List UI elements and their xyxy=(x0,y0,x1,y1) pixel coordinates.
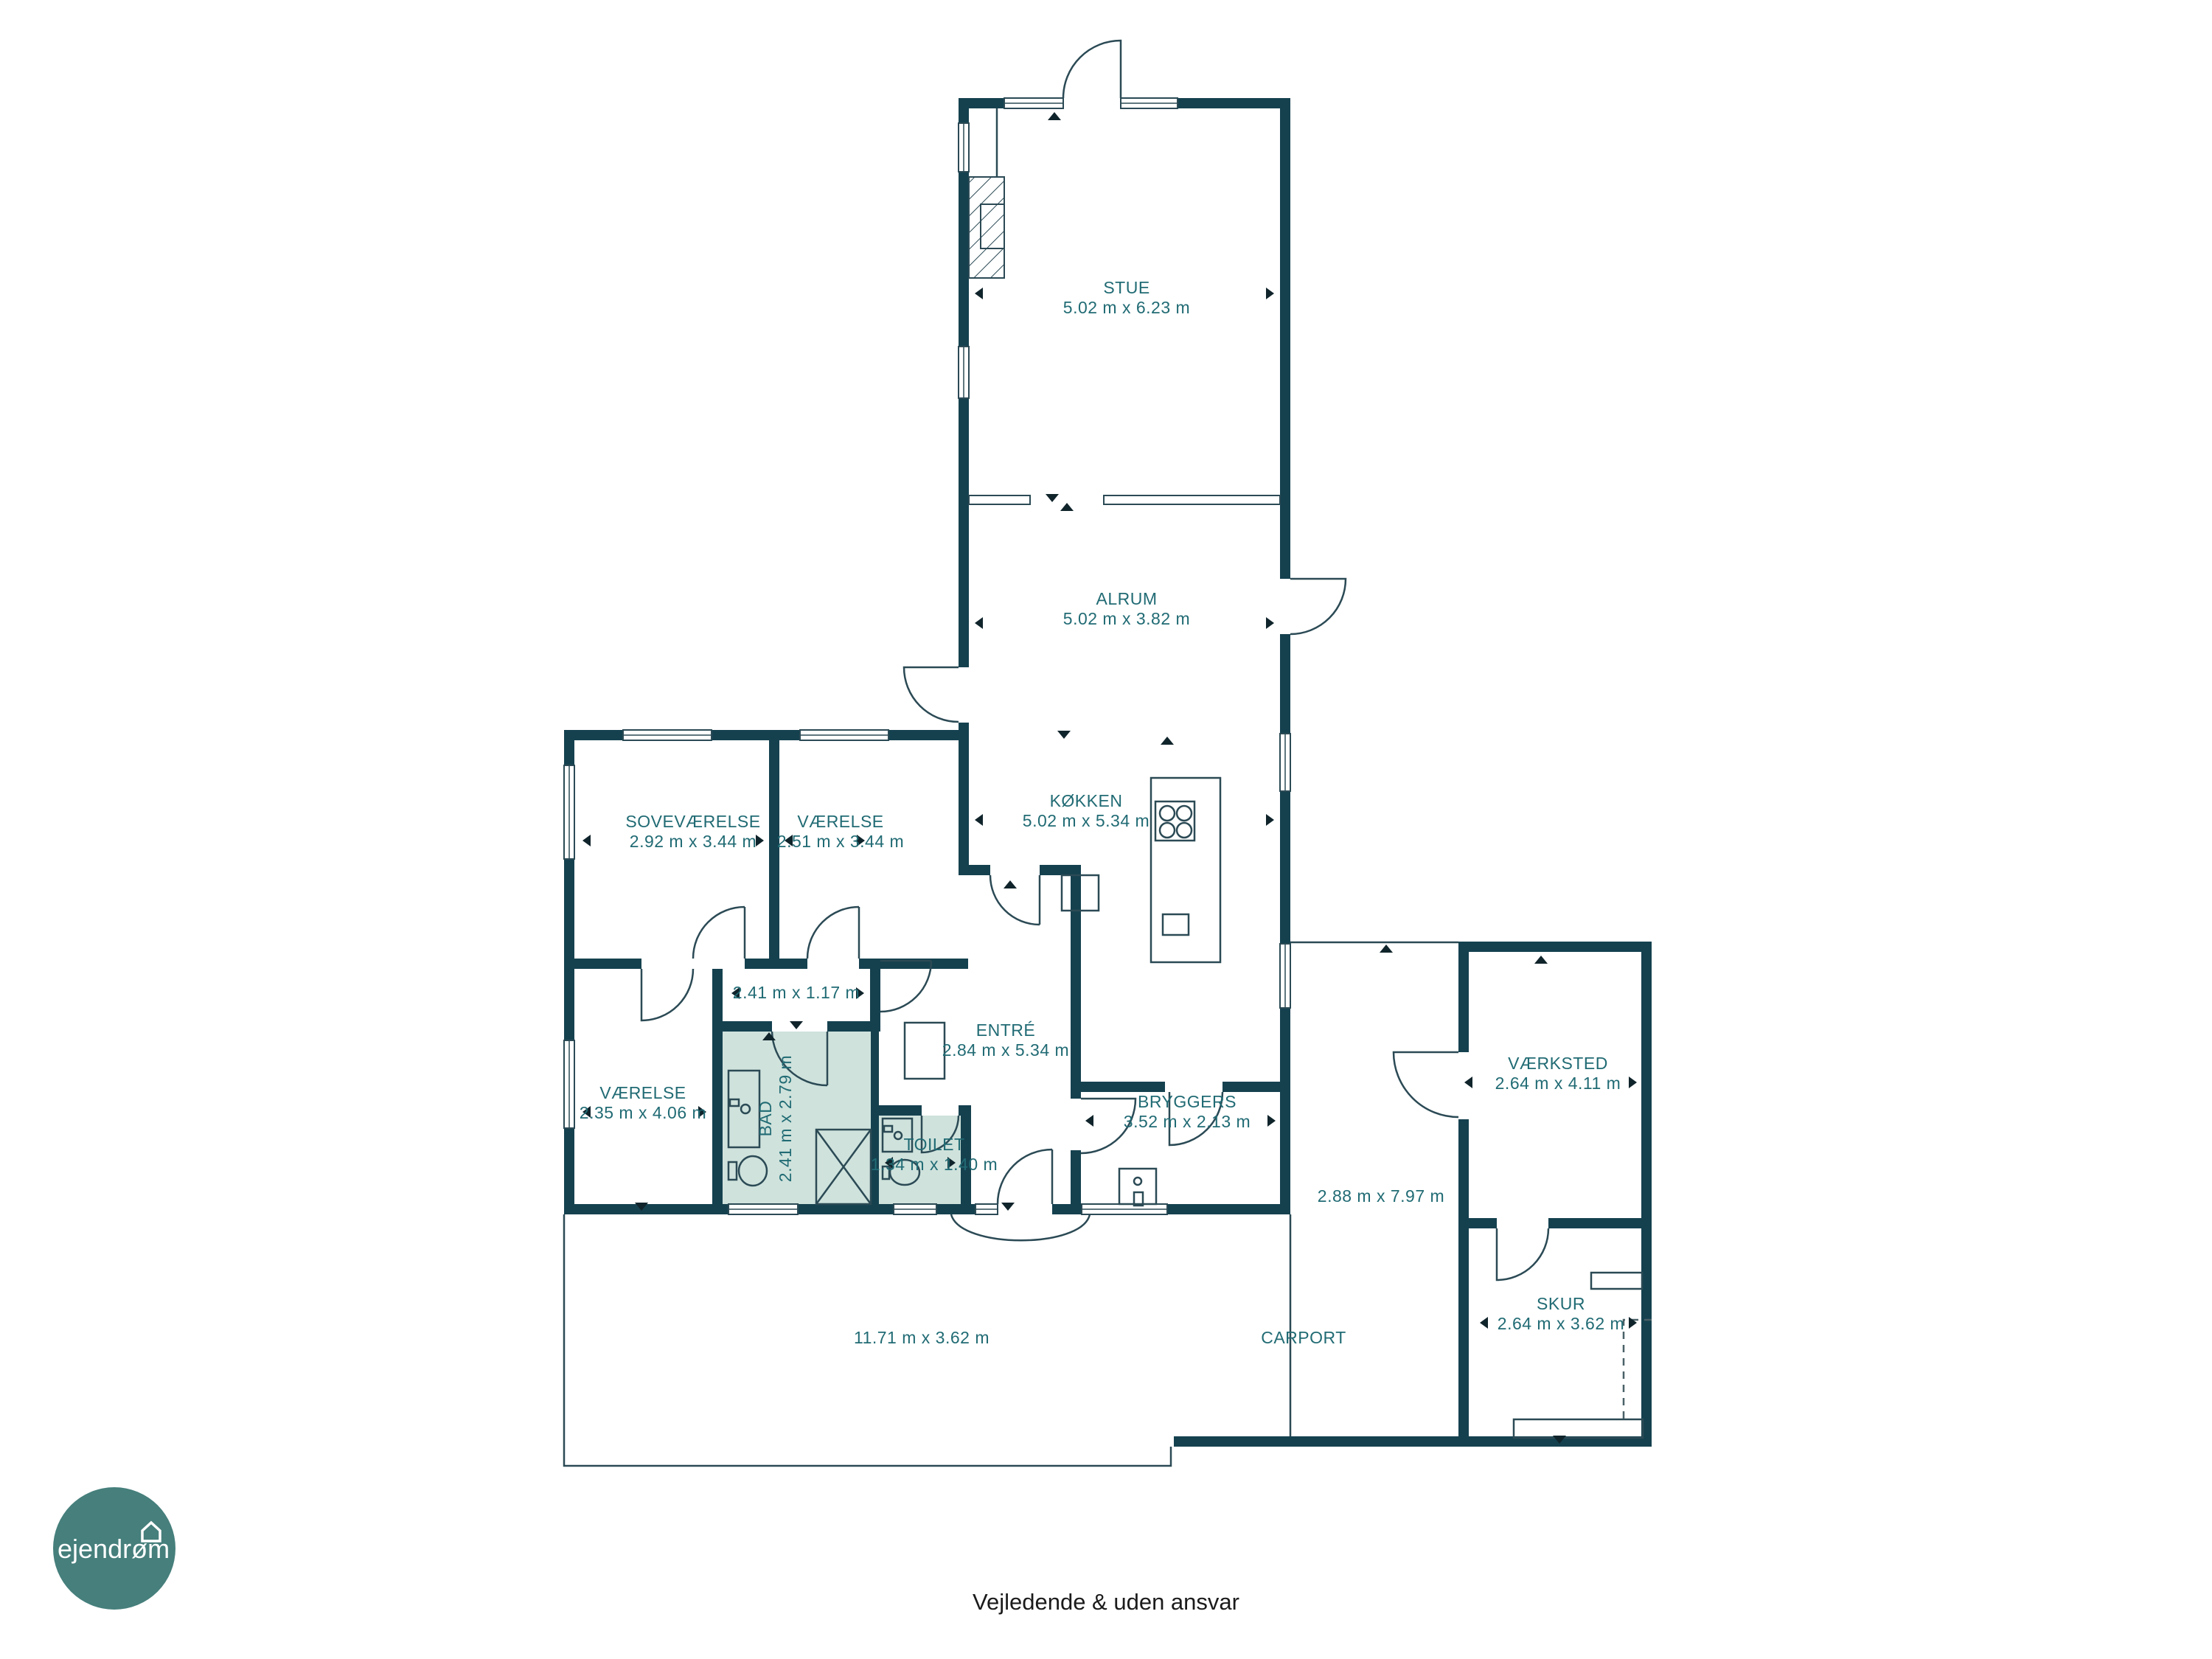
fireplace xyxy=(969,108,1004,278)
dims-vaerelse-2: 2.35 m x 4.06 m xyxy=(580,1103,706,1122)
kitchen-island xyxy=(1151,778,1220,962)
dims-vaerelse-1: 2.51 m x 3.44 m xyxy=(777,832,904,851)
label-vaerelse-1: VÆRELSE xyxy=(797,812,883,831)
label-alrum: ALRUM xyxy=(1096,589,1157,608)
window xyxy=(1280,944,1290,1008)
window xyxy=(800,730,888,740)
window xyxy=(1082,1204,1167,1214)
window xyxy=(564,765,574,859)
window xyxy=(959,123,969,172)
window xyxy=(564,1040,574,1128)
label-skur: SKUR xyxy=(1537,1294,1585,1313)
room-divider xyxy=(969,495,1280,504)
logo-wordmark: ejendrøm xyxy=(58,1534,170,1564)
window xyxy=(1121,98,1178,108)
dims-sovevaerelse: 2.92 m x 3.44 m xyxy=(630,832,757,851)
window xyxy=(728,1204,798,1214)
bryggers-sink xyxy=(1119,1169,1156,1206)
dims-terrasse-syd: 11.71 m x 3.62 m xyxy=(854,1328,990,1347)
dims-bryggers: 3.52 m x 2.13 m xyxy=(1124,1112,1251,1131)
window xyxy=(959,347,969,398)
window xyxy=(623,730,712,740)
window xyxy=(1280,734,1290,791)
sink-icon xyxy=(1163,914,1189,935)
label-carport: CARPORT xyxy=(1261,1328,1346,1347)
disclaimer-text: Vejledende & uden ansvar xyxy=(973,1589,1239,1615)
window xyxy=(975,1204,998,1214)
dims-bad: 2.41 m x 2.79 m xyxy=(776,1055,795,1182)
dims-terrasse-ost: 2.88 m x 7.97 m xyxy=(1318,1186,1444,1206)
window xyxy=(1004,98,1063,108)
dims-skur: 2.64 m x 3.62 m xyxy=(1498,1314,1624,1333)
label-stue: STUE xyxy=(1103,278,1150,297)
dims-toilet: 1.34 m x 1.40 m xyxy=(871,1155,998,1174)
dims-stue: 5.02 m x 6.23 m xyxy=(1063,298,1190,317)
dims-vaerksted: 2.64 m x 4.11 m xyxy=(1495,1074,1621,1093)
label-vaerksted: VÆRKSTED xyxy=(1508,1054,1608,1073)
window xyxy=(894,1204,936,1214)
dims-gang: 2.41 m x 1.17 m xyxy=(733,983,860,1002)
label-sovevaerelse: SOVEVÆRELSE xyxy=(625,812,760,831)
label-toilet: TOILET xyxy=(903,1135,964,1154)
windows-layer xyxy=(564,98,1290,1214)
label-entre: ENTRÉ xyxy=(976,1020,1035,1040)
logo: ejendrøm xyxy=(53,1487,175,1610)
dims-alrum: 5.02 m x 3.82 m xyxy=(1063,609,1190,628)
label-bryggers: BRYGGERS xyxy=(1138,1092,1237,1111)
dims-entre: 2.84 m x 5.34 m xyxy=(942,1040,1069,1060)
label-bad: BAD xyxy=(756,1101,775,1137)
dims-kokken: 5.02 m x 5.34 m xyxy=(1023,811,1150,830)
floorplan-canvas: STUE 5.02 m x 6.23 m ALRUM 5.02 m x 3.82… xyxy=(0,0,2212,1659)
label-kokken: KØKKEN xyxy=(1050,791,1123,810)
label-vaerelse-2: VÆRELSE xyxy=(599,1083,686,1102)
